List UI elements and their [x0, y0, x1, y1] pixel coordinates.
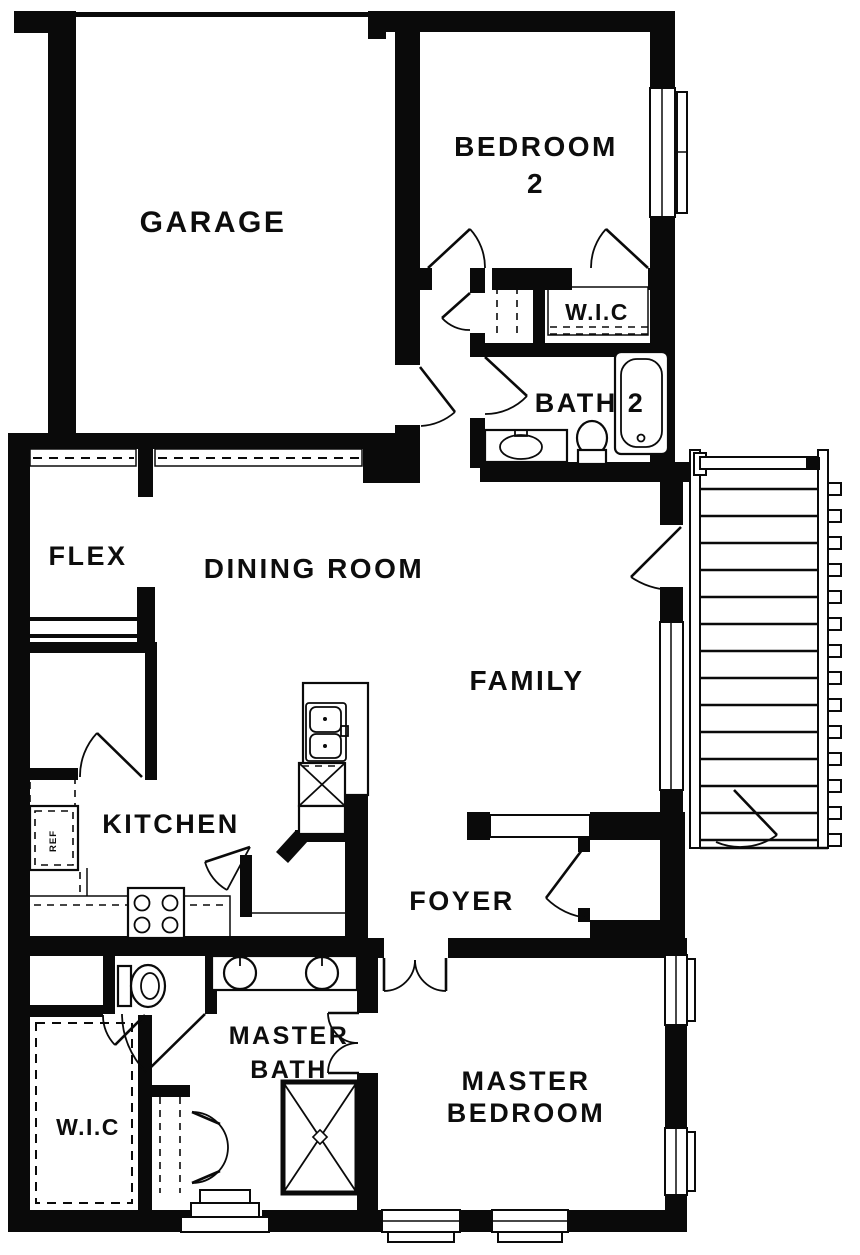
floor-plan-page: REF [0, 0, 860, 1255]
room-deck [690, 450, 842, 848]
door-garage-to-hall [420, 367, 455, 426]
entry-steps [181, 1190, 269, 1232]
foyer-half-wall [490, 815, 590, 837]
room-bath2 [485, 357, 650, 462]
floor-plan-drawing: REF [0, 0, 860, 1255]
room-master-bath [115, 956, 357, 1193]
window-master-bottom-2 [492, 1210, 568, 1242]
room-garage [76, 32, 395, 433]
window-master-right-2 [665, 1128, 695, 1195]
room-master-wic [30, 1017, 138, 1210]
room-foyer [368, 840, 578, 938]
window-family [660, 622, 683, 790]
linen-upper-shelving [497, 287, 517, 338]
room-flex [30, 449, 138, 617]
room-kitchen [30, 653, 303, 936]
door-linen-upper [442, 293, 470, 330]
window-bedroom2 [650, 88, 687, 217]
room-master-bedroom [378, 958, 665, 1210]
window-master-right-1 [665, 955, 695, 1025]
room-bedroom2 [420, 32, 650, 268]
room-wic-upper [545, 290, 650, 343]
flex-opening [28, 617, 138, 638]
window-master-bottom-1 [382, 1210, 460, 1242]
room-family [430, 482, 660, 812]
dishwasher [299, 763, 345, 806]
